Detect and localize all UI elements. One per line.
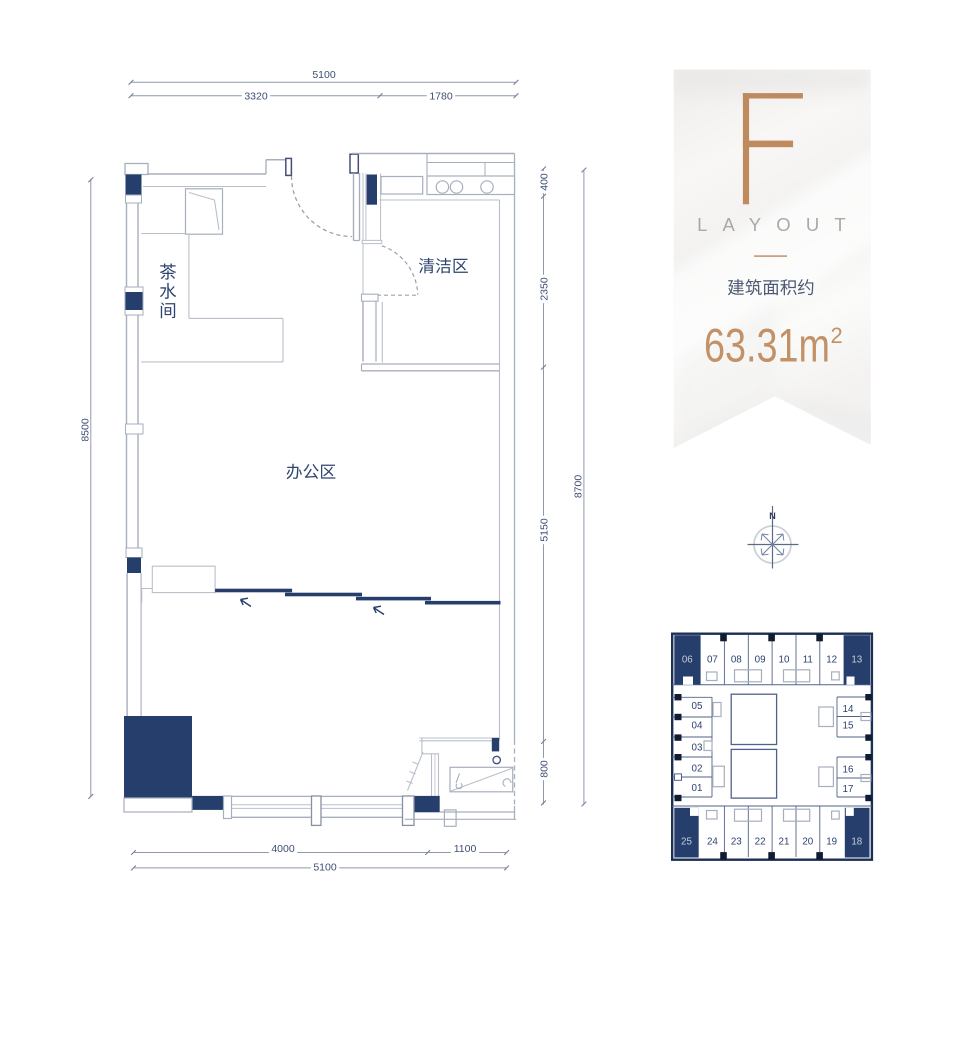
svg-text:03: 03 bbox=[692, 743, 703, 754]
svg-text:5150: 5150 bbox=[538, 518, 550, 542]
svg-text:02: 02 bbox=[692, 764, 703, 775]
svg-text:20: 20 bbox=[802, 837, 813, 848]
svg-text:N: N bbox=[769, 511, 776, 521]
svg-text:8500: 8500 bbox=[79, 418, 91, 442]
svg-text:800: 800 bbox=[538, 760, 550, 778]
svg-text:12: 12 bbox=[826, 655, 837, 666]
svg-text:22: 22 bbox=[755, 837, 766, 848]
svg-text:2: 2 bbox=[831, 323, 843, 348]
svg-text:05: 05 bbox=[692, 701, 703, 712]
svg-text:25: 25 bbox=[681, 837, 692, 848]
svg-text:08: 08 bbox=[731, 655, 742, 666]
svg-text:63.31m: 63.31m bbox=[704, 319, 830, 372]
svg-text:01: 01 bbox=[692, 783, 703, 794]
svg-text:14: 14 bbox=[843, 704, 854, 715]
svg-text:4000: 4000 bbox=[271, 843, 295, 855]
svg-text:5100: 5100 bbox=[313, 861, 337, 873]
svg-text:1780: 1780 bbox=[429, 90, 453, 102]
svg-text:3320: 3320 bbox=[244, 90, 268, 102]
svg-text:2350: 2350 bbox=[538, 277, 550, 301]
svg-text:400: 400 bbox=[538, 173, 550, 191]
svg-text:07: 07 bbox=[707, 655, 718, 666]
svg-text:09: 09 bbox=[755, 655, 766, 666]
svg-text:17: 17 bbox=[843, 784, 854, 795]
svg-text:06: 06 bbox=[682, 655, 693, 666]
svg-text:19: 19 bbox=[826, 837, 837, 848]
svg-text:18: 18 bbox=[851, 837, 862, 848]
svg-text:15: 15 bbox=[843, 721, 854, 732]
svg-text:13: 13 bbox=[851, 655, 862, 666]
svg-text:8700: 8700 bbox=[572, 475, 584, 499]
svg-text:LAYOUT: LAYOUT bbox=[697, 214, 861, 235]
svg-text:24: 24 bbox=[707, 837, 718, 848]
svg-text:21: 21 bbox=[779, 837, 790, 848]
svg-text:04: 04 bbox=[692, 721, 703, 732]
svg-text:10: 10 bbox=[779, 655, 790, 666]
svg-text:16: 16 bbox=[843, 765, 854, 776]
svg-text:11: 11 bbox=[803, 655, 813, 666]
svg-text:1100: 1100 bbox=[454, 843, 477, 855]
svg-text:5100: 5100 bbox=[312, 69, 336, 81]
svg-text:23: 23 bbox=[731, 837, 742, 848]
